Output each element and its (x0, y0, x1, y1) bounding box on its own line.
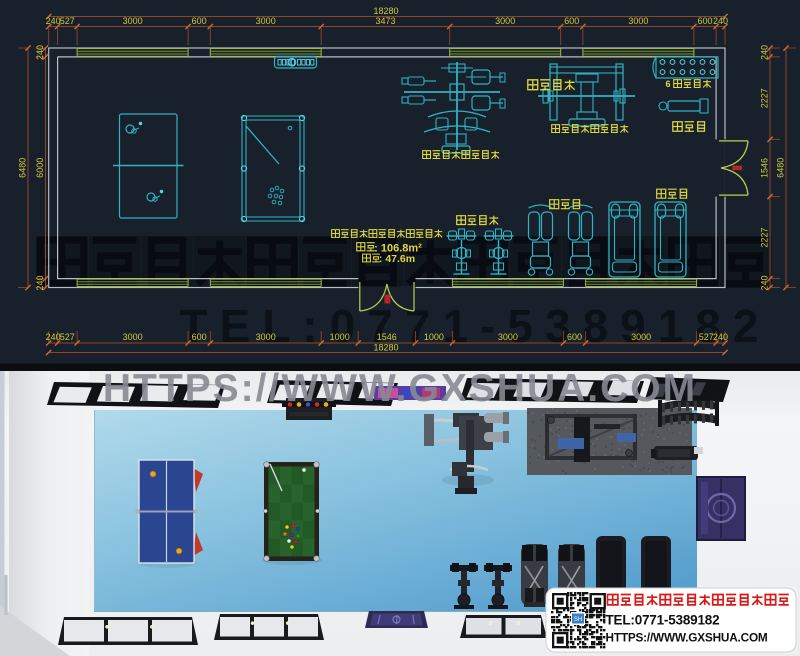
svg-text:3000: 3000 (256, 332, 276, 342)
svg-text:1000: 1000 (330, 332, 350, 342)
svg-text:240: 240 (35, 275, 45, 290)
svg-text:1546: 1546 (377, 332, 397, 342)
svg-text:600: 600 (697, 16, 712, 26)
svg-text:527: 527 (699, 332, 714, 342)
svg-text:2227: 2227 (760, 88, 770, 108)
svg-text:6480: 6480 (18, 158, 28, 178)
svg-text:18280: 18280 (373, 343, 398, 353)
svg-text:3000: 3000 (123, 332, 143, 342)
svg-text:18280: 18280 (373, 6, 398, 16)
svg-text:TEL:0771-5389182: TEL:0771-5389182 (606, 613, 720, 628)
svg-text:6480: 6480 (776, 158, 786, 178)
svg-text:1000: 1000 (424, 332, 444, 342)
svg-text:527: 527 (60, 16, 75, 26)
svg-text:3000: 3000 (631, 332, 651, 342)
svg-text:240: 240 (760, 45, 770, 60)
svg-text:6000: 6000 (35, 158, 45, 178)
svg-text:240: 240 (46, 332, 61, 342)
svg-text:527: 527 (60, 332, 75, 342)
svg-text:2227: 2227 (760, 228, 770, 248)
svg-text:: 47.6m: : 47.6m (379, 253, 415, 265)
svg-text:600: 600 (567, 332, 582, 342)
svg-text:240: 240 (760, 275, 770, 290)
svg-text:3000: 3000 (628, 16, 648, 26)
svg-text:240: 240 (713, 16, 728, 26)
svg-text:6: 6 (665, 79, 670, 89)
svg-text:3000: 3000 (123, 16, 143, 26)
svg-text:3473: 3473 (375, 16, 395, 26)
svg-text:HTTPS://WWW.GXSHUA.COM: HTTPS://WWW.GXSHUA.COM (606, 631, 768, 645)
svg-text:240: 240 (46, 16, 61, 26)
svg-text:600: 600 (192, 332, 207, 342)
svg-text:3000: 3000 (498, 332, 518, 342)
svg-text:240: 240 (35, 45, 45, 60)
svg-text:1546: 1546 (760, 158, 770, 178)
svg-text:240: 240 (713, 332, 728, 342)
svg-text:SH: SH (574, 617, 582, 623)
svg-text:HTTPS://WWW.GXSHUA.COM: HTTPS://WWW.GXSHUA.COM (103, 367, 697, 410)
svg-text:3000: 3000 (495, 16, 515, 26)
svg-text:600: 600 (564, 16, 579, 26)
svg-text:3000: 3000 (256, 16, 276, 26)
svg-text:TEL:0771-5389182: TEL:0771-5389182 (180, 300, 771, 352)
svg-text:600: 600 (192, 16, 207, 26)
